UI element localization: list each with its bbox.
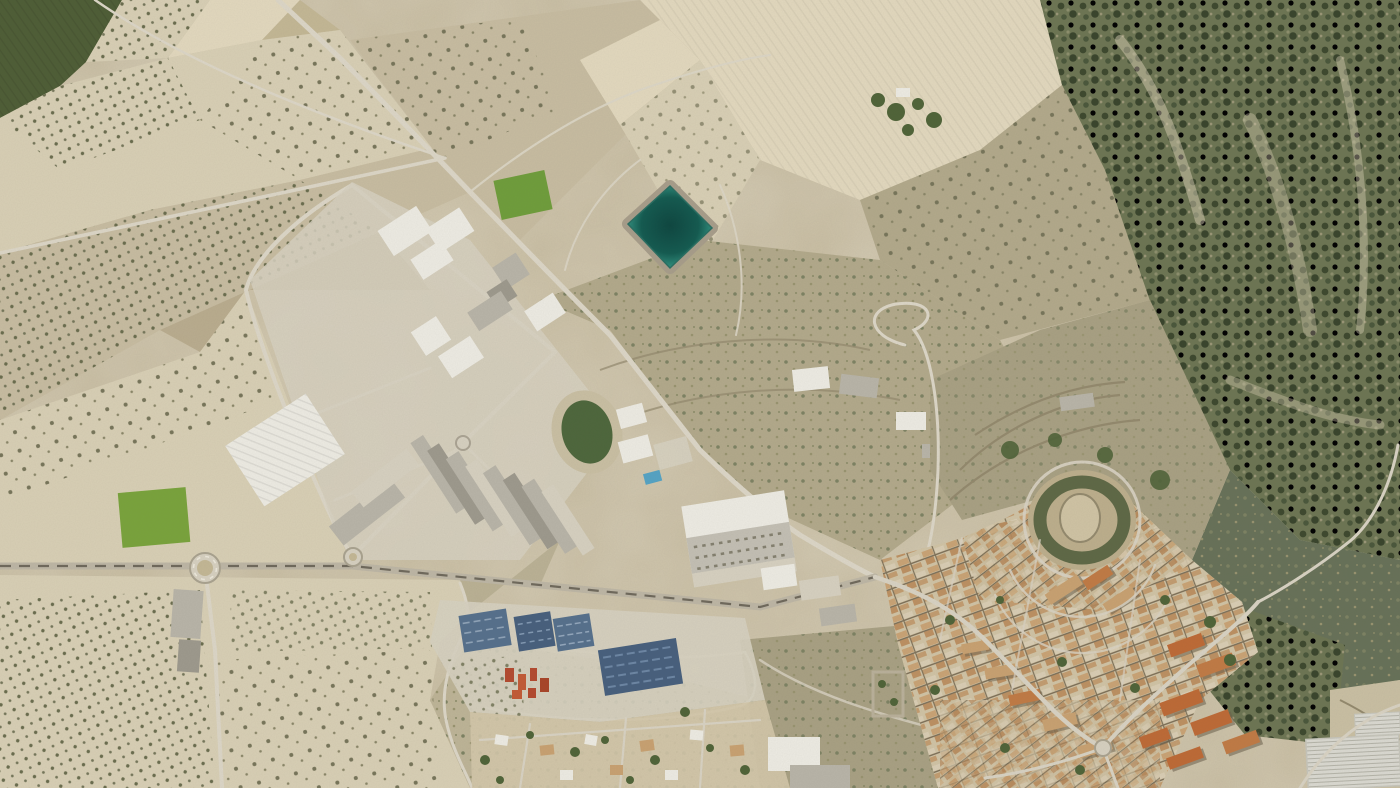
photo-grain-overlay — [0, 0, 1400, 788]
aerial-photo — [0, 0, 1400, 788]
satellite-image — [0, 0, 1400, 788]
